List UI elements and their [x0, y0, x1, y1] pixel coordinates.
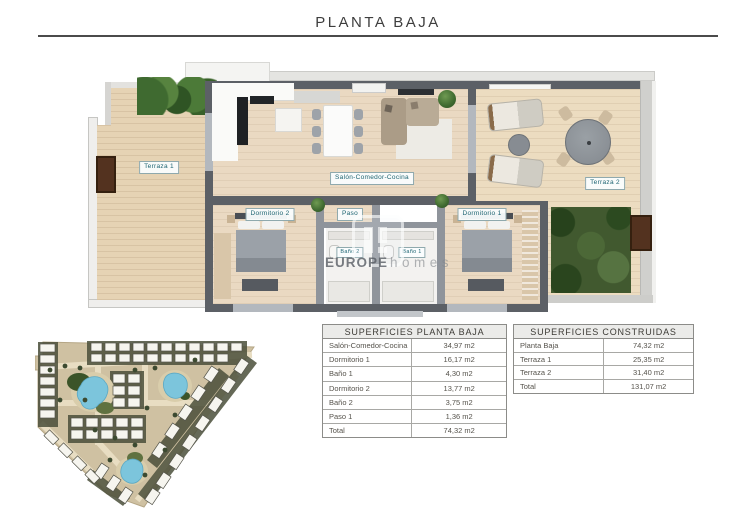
- terrace2-garden: [551, 207, 631, 293]
- table-row: Salón-Comedor-Cocina 34,97 m2: [323, 339, 506, 353]
- dorm1-pillow: [488, 221, 510, 229]
- dorm2-bed-throw: [236, 258, 286, 272]
- plant: [438, 90, 456, 108]
- plant: [435, 194, 449, 208]
- dorm1-pillow: [464, 221, 486, 229]
- dorm2-window: [233, 304, 293, 312]
- pool: [163, 373, 187, 398]
- watermark-logo-bar: [378, 227, 387, 243]
- sofa-pillow: [410, 101, 418, 109]
- table-row: Total 131,07 m2: [514, 380, 693, 393]
- terrace2-round-table: [565, 119, 611, 165]
- salon-terrace2-slider: [468, 105, 476, 173]
- dorm2-pillow: [238, 221, 260, 229]
- dorm1-bed-throw: [462, 258, 512, 272]
- table-row: Baño 2 3,75 m2: [323, 396, 506, 410]
- sofa-pillow: [384, 104, 392, 112]
- terrace2-gate-door: [630, 215, 652, 251]
- table-row: Dormitorio 1 16,17 m2: [323, 353, 506, 367]
- table-center-dot: [587, 141, 591, 145]
- table-superficies-planta-baja: SUPERFICIES PLANTA BAJA Salón-Comedor-Co…: [322, 324, 507, 438]
- room-label-terraza2: Terraza 2: [585, 177, 625, 190]
- table-superficies-construidas: SUPERFICIES CONSTRUIDAS Planta Baja 74,3…: [513, 324, 694, 394]
- kitchen-appliance-column: [237, 97, 248, 145]
- dining-chair: [312, 143, 321, 154]
- watermark-logo-bar: [378, 247, 387, 253]
- dining-chair: [354, 143, 363, 154]
- watermark-brand-light: homes: [390, 255, 453, 270]
- terrace1-deck: [97, 125, 215, 300]
- terrace1-wall-bottom: [88, 299, 216, 308]
- bano2-shower: [328, 281, 370, 302]
- title-divider: [38, 35, 718, 37]
- table-row: Baño 1 4,30 m2: [323, 367, 506, 381]
- plant: [311, 198, 325, 212]
- terrace2-wall-right: [640, 81, 652, 303]
- bano1-shower: [382, 281, 434, 302]
- dining-chair: [312, 109, 321, 120]
- tv: [398, 89, 434, 95]
- terrace1-gate-door: [96, 156, 116, 193]
- pool: [121, 459, 143, 483]
- table-title: SUPERFICIES PLANTA BAJA: [323, 325, 506, 339]
- wall-right-lower: [540, 196, 548, 312]
- room-label-terraza1: Terraza 1: [139, 161, 179, 174]
- top-window: [352, 83, 386, 93]
- watermark-logo-bar: [364, 227, 373, 253]
- table-row: Planta Baja 74,32 m2: [514, 339, 693, 353]
- room-label-salon: Salón-Comedor-Cocina: [330, 172, 414, 185]
- watermark-text: EUROPEhomes: [325, 255, 453, 270]
- kitchen-island: [275, 108, 302, 132]
- dorm2-rug: [242, 279, 278, 291]
- dining-chair: [354, 126, 363, 137]
- dorm1-wardrobe: [522, 210, 538, 300]
- table-row: Paso 1 1,36 m2: [323, 410, 506, 424]
- kitchen-cooktop: [250, 96, 274, 104]
- table-title: SUPERFICIES CONSTRUIDAS: [514, 325, 693, 339]
- terrace2-wall-outer: [652, 81, 656, 303]
- terrace2-wall-bottom: [548, 295, 653, 303]
- table-row: Terraza 1 25,35 m2: [514, 353, 693, 367]
- kitchen-counter-gray: [294, 91, 340, 103]
- dorm1-rug: [468, 279, 504, 291]
- page-title: PLANTA BAJA: [0, 14, 756, 31]
- dining-chair: [312, 126, 321, 137]
- wall-dorm2-paso: [316, 205, 324, 304]
- dining-table: [323, 105, 353, 157]
- brochure-page: PLANTA BAJA: [0, 0, 756, 528]
- ottoman: [508, 134, 530, 156]
- watermark-brand-bold: EUROPE: [325, 255, 388, 270]
- sun-lounger: [487, 98, 545, 132]
- room-label-dormitorio2: Dormitorio 2: [246, 208, 295, 221]
- table-row: Total 74,32 m2: [323, 424, 506, 437]
- dining-chair: [354, 109, 363, 120]
- entry-step: [337, 311, 423, 317]
- dorm2-wardrobe: [214, 233, 231, 299]
- floor-plan: Terraza 1 Salón-Comedor-Cocina Dormitori…: [85, 55, 677, 317]
- site-plan-map: [35, 330, 301, 510]
- dorm2-pillow: [262, 221, 284, 229]
- dorm1-nightstand: [514, 215, 522, 223]
- room-label-dormitorio1: Dormitorio 1: [458, 208, 507, 221]
- table-row: Terraza 2 31,40 m2: [514, 366, 693, 380]
- dorm1-window: [447, 304, 507, 312]
- dorm2-nightstand: [227, 215, 235, 223]
- roof-edge: [203, 71, 655, 81]
- table-row: Dormitorio 2 13,77 m2: [323, 382, 506, 396]
- kitchen-counter-left: [212, 83, 238, 161]
